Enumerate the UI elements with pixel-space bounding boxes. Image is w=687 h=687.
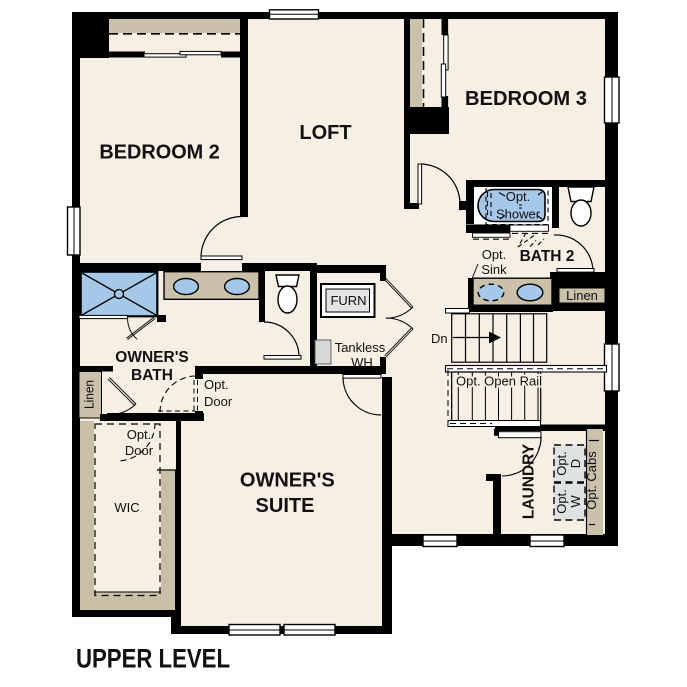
svg-text:Tankless: Tankless	[335, 340, 386, 355]
svg-text:UPPER LEVEL: UPPER LEVEL	[76, 644, 230, 674]
svg-text:D: D	[568, 459, 583, 468]
svg-text:Opt.: Opt.	[127, 427, 152, 442]
svg-text:Opt. Cabs: Opt. Cabs	[584, 451, 599, 510]
svg-text:BEDROOM 2: BEDROOM 2	[99, 142, 220, 164]
svg-text:WIC: WIC	[114, 500, 139, 515]
svg-text:WH: WH	[351, 355, 373, 370]
svg-text:BATH: BATH	[131, 367, 173, 384]
svg-text:BEDROOM 3: BEDROOM 3	[465, 88, 587, 110]
svg-text:Dn: Dn	[431, 331, 448, 346]
svg-text:Sink: Sink	[481, 262, 507, 277]
svg-text:OWNER'S: OWNER'S	[115, 349, 188, 366]
svg-text:FURN: FURN	[330, 293, 366, 308]
svg-text:Shower: Shower	[496, 207, 541, 222]
svg-text:Opt. Open Rail: Opt. Open Rail	[456, 374, 542, 389]
svg-text:LOFT: LOFT	[299, 122, 351, 144]
svg-text:SUITE: SUITE	[256, 495, 315, 517]
svg-text:OWNER'S: OWNER'S	[240, 469, 335, 491]
svg-text:Linen: Linen	[566, 288, 598, 303]
svg-text:Opt.: Opt.	[204, 377, 229, 392]
svg-text:Door: Door	[204, 394, 233, 409]
svg-text:Opt.: Opt.	[554, 489, 569, 514]
svg-text:Door: Door	[125, 443, 154, 458]
svg-text:Opt.: Opt.	[554, 451, 569, 476]
svg-text:BATH 2: BATH 2	[520, 248, 575, 265]
svg-text:Opt.: Opt.	[506, 189, 531, 204]
svg-text:Linen: Linen	[82, 380, 97, 409]
svg-text:LAUNDRY: LAUNDRY	[521, 443, 538, 519]
svg-text:Opt.: Opt.	[482, 247, 507, 262]
svg-text:W: W	[568, 495, 583, 508]
